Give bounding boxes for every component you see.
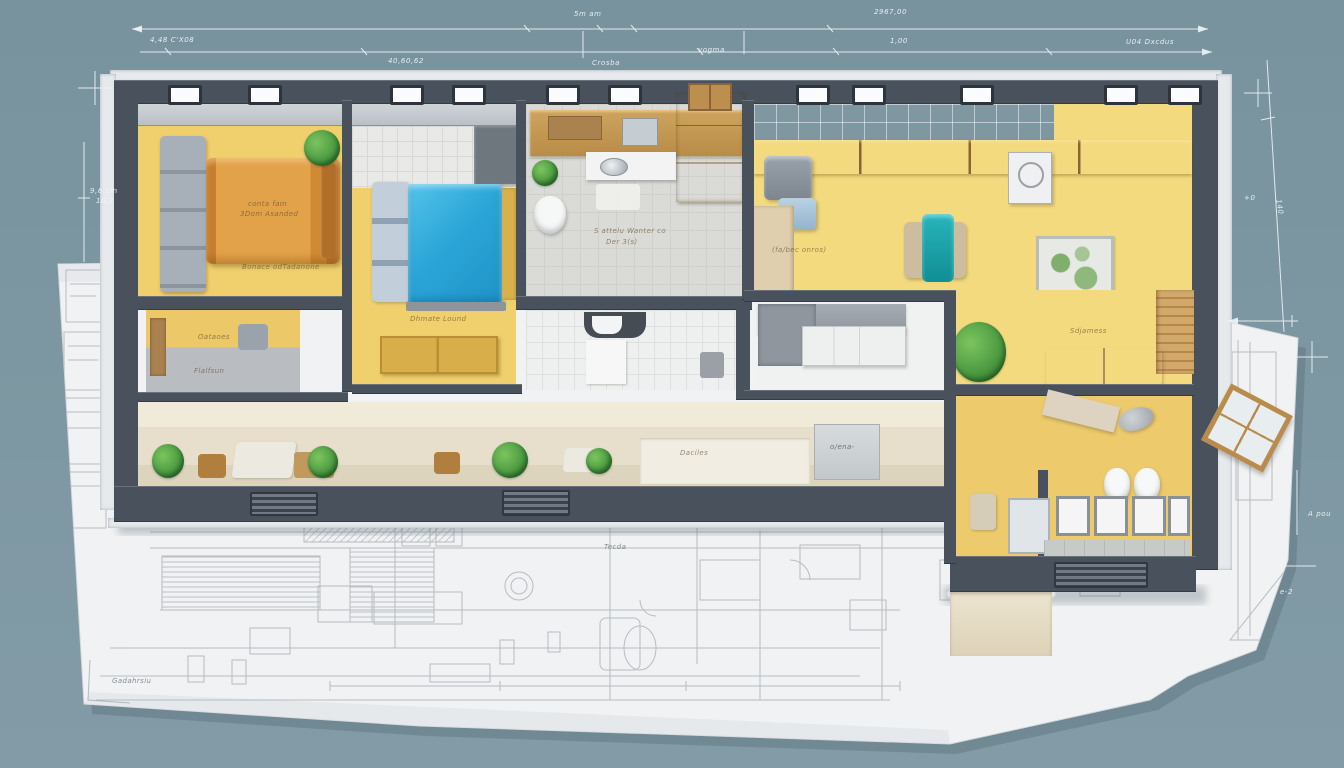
- dimension-label: 40,60,62: [388, 57, 424, 65]
- dimension-label: 5m am: [574, 10, 602, 18]
- living-armchair-gray: [764, 156, 812, 200]
- wall-utility-south: [744, 390, 958, 400]
- room-label-kitchen-line1: S attelu Wanter co: [594, 227, 666, 235]
- room-living-extension: [956, 290, 1192, 386]
- dimension-label: Crosba: [592, 59, 620, 67]
- skylight-window-1: [168, 85, 202, 105]
- skylight-window-9: [960, 85, 994, 105]
- bedroom1-north-wall-face: [138, 104, 342, 126]
- corridor-wall-panel: [640, 438, 810, 484]
- dimension-label: 10,2: [96, 197, 114, 205]
- stall-panel-2: [1094, 496, 1128, 536]
- wall-divider-2: [516, 100, 526, 310]
- chaise-teal: [922, 214, 954, 282]
- wall-bottomright-north: [956, 384, 1194, 396]
- skylight-window-8: [852, 85, 886, 105]
- skylight-window-5: [546, 85, 580, 105]
- wall-bedroom1-south: [138, 296, 346, 310]
- bedroom1-plant: [304, 130, 340, 166]
- dimension-label: 2967,00: [874, 8, 907, 16]
- bedroom2-north-wall-face: [352, 104, 516, 126]
- room-label-living-ext: Sdjamess: [1070, 327, 1107, 335]
- skylight-window-3: [390, 85, 424, 105]
- vent-grille-1: [250, 492, 318, 516]
- wall-divider-3: [742, 100, 754, 300]
- bottomright-tile-strip: [1044, 540, 1190, 556]
- bedroom2-bed-base: [406, 302, 506, 311]
- corridor-cushion-brown-2: [434, 452, 460, 474]
- room-label-corridor-1: o/ena-: [830, 443, 855, 451]
- dimension-label: 1,00: [890, 37, 908, 45]
- bedroom2-wardrobe: [474, 126, 518, 184]
- washer-door: [1018, 162, 1044, 188]
- bedroom2-dresser: [380, 336, 498, 374]
- living-tree: [952, 322, 1006, 382]
- stall-panel-4: [1168, 496, 1190, 536]
- room-small-study: [146, 310, 300, 392]
- room-label-bedroom2: Dhmate Lound: [410, 315, 467, 323]
- sofa-beige: [1046, 348, 1162, 386]
- bath-mat: [596, 184, 640, 210]
- room-label-bedroom1-line2: 3Dom Asanded: [240, 210, 298, 218]
- blueprint-label-mid: Tecda: [604, 543, 626, 551]
- cut-wall-face: [950, 592, 1052, 656]
- kitchen-appliance: [622, 118, 658, 146]
- corridor-cushion-white-1: [231, 442, 296, 478]
- bedroom1-wardrobe-sofa: [160, 136, 206, 292]
- room-utility: [756, 302, 944, 390]
- wall-bathroom-east: [736, 296, 750, 400]
- corridor-plant-2: [308, 446, 338, 478]
- room-bedroom-2: [352, 104, 516, 384]
- bathroom-fixture: [700, 352, 724, 378]
- room-corridor: [138, 402, 944, 486]
- wall-kitchen-south: [516, 296, 752, 310]
- dimension-label: +0: [1244, 194, 1256, 202]
- bedroom1-bed-headboard: [320, 162, 336, 258]
- wall-bedroom2-south: [352, 384, 522, 394]
- corridor-cushion-brown-1: [198, 454, 226, 478]
- corridor-appliance-gray: [814, 424, 880, 480]
- floorplan-scene: 4,48 C'X08 5m am 2967,00 1,00 U04 Dxcdus…: [0, 0, 1344, 768]
- bedroom2-pillows: [372, 182, 410, 302]
- room-bottom-right: [956, 396, 1192, 556]
- small-room-shelf: [150, 318, 166, 376]
- skylight-window-2: [248, 85, 282, 105]
- wall-small-room-south: [138, 392, 348, 402]
- bathroom-partition: [586, 340, 626, 384]
- living-sideboard: [754, 140, 1192, 174]
- bathroom-shower-tray: [592, 316, 622, 334]
- room-label-small-2: Flalfsun: [194, 367, 224, 375]
- wall-divider-1: [342, 100, 352, 392]
- blueprint-label-corner: Gadahrsiu: [112, 677, 151, 685]
- kitchen-plant: [532, 160, 558, 186]
- room-kitchen-bath: [526, 104, 742, 296]
- wall-divider-4: [944, 290, 956, 564]
- dimension-label: 9,6 cm: [90, 187, 118, 195]
- dimension-label: U04 Dxcdus: [1126, 38, 1174, 46]
- small-room-chair: [238, 324, 268, 350]
- toilet: [534, 196, 566, 234]
- dimension-label: 4,48 C'X08: [150, 36, 194, 44]
- room-label-bedroom1-floor: Bonace odTadanone: [242, 263, 320, 271]
- room-bathroom: [526, 310, 736, 390]
- east-wall: [1192, 80, 1218, 570]
- west-wall: [114, 80, 138, 500]
- room-label-bedroom1-line1: conta fam: [248, 200, 287, 208]
- skylight-window-6: [608, 85, 642, 105]
- room-label-kitchen-line2: Der 3(s): [606, 238, 638, 246]
- desk-chair-gray: [1115, 403, 1156, 435]
- corridor-plant-3: [492, 442, 528, 478]
- dimension-label: e-2: [1280, 588, 1293, 596]
- wall-living-south: [744, 290, 956, 302]
- bedroom2-bed-blue: [408, 184, 502, 304]
- room-label-corridor-2: Daciles: [680, 449, 708, 457]
- vent-grille-2: [502, 490, 570, 516]
- skylight-window-11: [1168, 85, 1202, 105]
- bottomright-chair: [970, 494, 996, 530]
- kitchen-sink: [600, 158, 628, 176]
- desk-beige: [1042, 389, 1120, 432]
- room-living: [754, 104, 1192, 290]
- vent-grille-right: [1054, 562, 1148, 588]
- living-tile-backsplash: [754, 104, 1054, 140]
- dimension-label: vogma: [698, 46, 725, 54]
- room-label-small-1: Oataoes: [198, 333, 230, 341]
- stall-panel-3: [1132, 496, 1166, 536]
- corridor-plant-1: [152, 444, 184, 478]
- kitchen-cooktop: [548, 116, 602, 140]
- entry-door: [688, 83, 732, 111]
- east-outer-trim: [1216, 74, 1232, 570]
- corridor-plant-4: [586, 448, 612, 474]
- utility-island: [802, 326, 906, 366]
- skylight-window-4: [452, 85, 486, 105]
- stall-panel-1: [1056, 496, 1090, 536]
- skylight-window-10: [1104, 85, 1138, 105]
- room-label-living: (fa/bec onros): [772, 246, 827, 254]
- skylight-window-7: [796, 85, 830, 105]
- dimension-label: A pou: [1308, 510, 1331, 518]
